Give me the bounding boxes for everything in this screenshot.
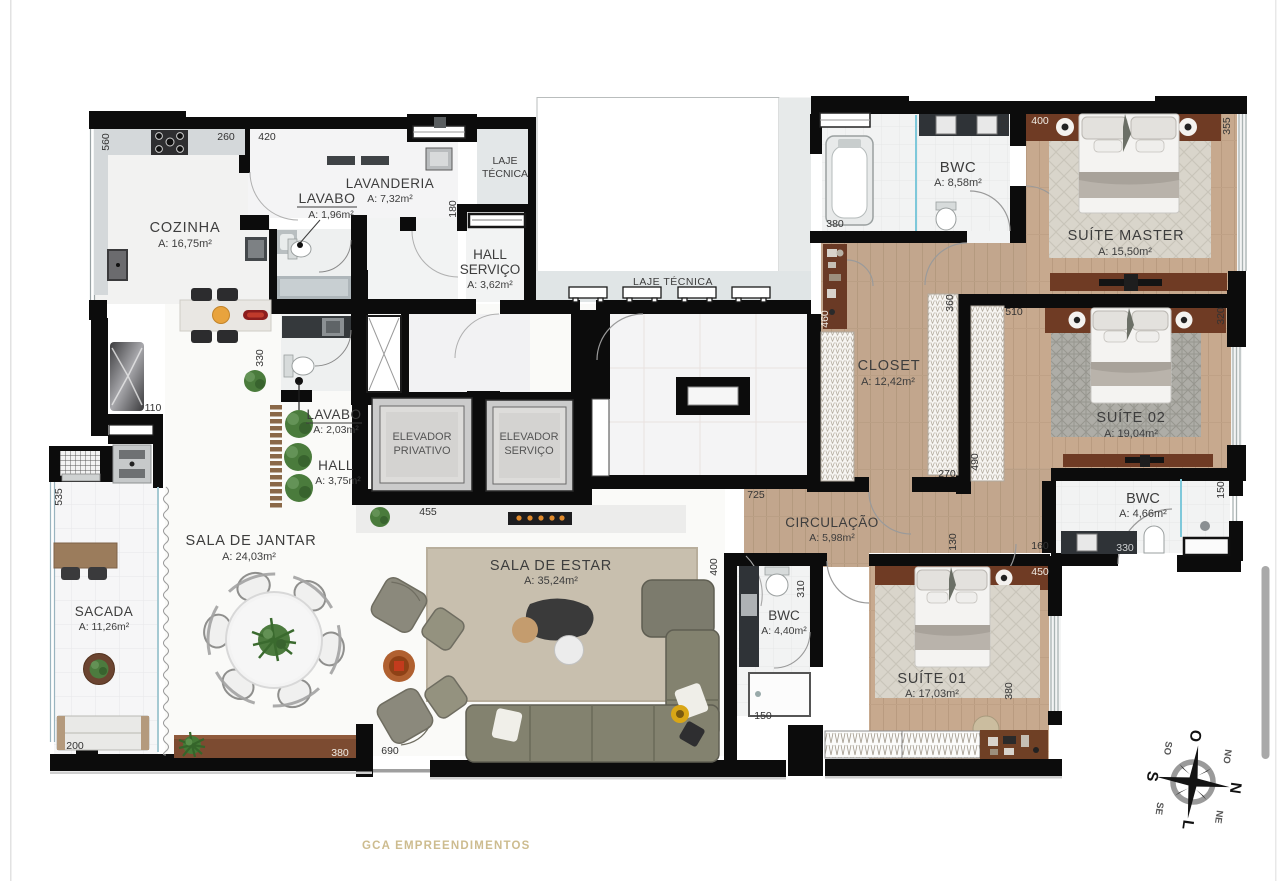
- svg-text:CLOSET: CLOSET: [858, 358, 921, 374]
- svg-text:BWC: BWC: [768, 608, 800, 623]
- svg-text:NO: NO: [1220, 749, 1233, 765]
- svg-text:HALL: HALL: [473, 247, 507, 262]
- svg-text:320: 320: [1215, 307, 1227, 325]
- svg-text:O: O: [1186, 729, 1205, 743]
- svg-text:A: 17,03m²: A: 17,03m²: [905, 688, 959, 700]
- svg-text:TÉCNICA: TÉCNICA: [482, 167, 528, 180]
- svg-text:360: 360: [944, 294, 956, 312]
- svg-text:235: 235: [999, 116, 1011, 134]
- svg-text:330: 330: [254, 349, 266, 367]
- svg-text:150: 150: [1215, 481, 1227, 499]
- svg-text:A: 12,42m²: A: 12,42m²: [861, 376, 915, 388]
- svg-text:LAVANDERIA: LAVANDERIA: [346, 176, 435, 191]
- svg-text:535: 535: [53, 488, 65, 506]
- svg-text:A: 11,26m²: A: 11,26m²: [79, 621, 130, 633]
- svg-text:560: 560: [100, 133, 112, 151]
- svg-text:SUÍTE MASTER: SUÍTE MASTER: [1068, 227, 1185, 244]
- svg-text:A: 15,50m²: A: 15,50m²: [1098, 246, 1152, 258]
- svg-text:A: 3,62m²: A: 3,62m²: [467, 279, 513, 291]
- svg-text:725: 725: [747, 489, 765, 501]
- svg-text:460: 460: [819, 310, 831, 328]
- svg-text:NE: NE: [1212, 810, 1225, 825]
- svg-text:510: 510: [1005, 306, 1023, 318]
- svg-text:200: 200: [66, 740, 84, 752]
- svg-text:A: 4,40m²: A: 4,40m²: [761, 625, 807, 637]
- svg-text:ELEVADOR: ELEVADOR: [499, 431, 558, 443]
- svg-text:400: 400: [1031, 115, 1049, 127]
- svg-text:A: 16,75m²: A: 16,75m²: [158, 238, 212, 250]
- svg-text:380: 380: [826, 218, 844, 230]
- svg-text:SACADA: SACADA: [75, 604, 134, 619]
- svg-text:110: 110: [145, 402, 162, 414]
- svg-text:N: N: [1226, 781, 1244, 794]
- svg-text:310: 310: [795, 580, 807, 598]
- svg-text:SERVIÇO: SERVIÇO: [504, 445, 554, 457]
- svg-text:490: 490: [969, 453, 981, 471]
- svg-text:A: 19,04m²: A: 19,04m²: [1104, 428, 1158, 440]
- svg-text:LAJE TÉCNICA: LAJE TÉCNICA: [633, 275, 713, 288]
- svg-text:A: 2,03m²: A: 2,03m²: [313, 424, 359, 436]
- svg-text:HALL: HALL: [318, 458, 354, 473]
- svg-text:ELEVADOR: ELEVADOR: [392, 431, 451, 443]
- svg-text:GCA EMPREENDIMENTOS: GCA EMPREENDIMENTOS: [362, 840, 530, 852]
- svg-text:LAJE: LAJE: [492, 155, 517, 167]
- svg-text:CIRCULAÇÃO: CIRCULAÇÃO: [785, 515, 879, 530]
- svg-text:SALA DE ESTAR: SALA DE ESTAR: [490, 558, 612, 574]
- svg-text:BWC: BWC: [940, 159, 977, 176]
- svg-text:455: 455: [419, 506, 437, 518]
- svg-text:A: 3,75m²: A: 3,75m²: [315, 475, 361, 487]
- svg-text:130: 130: [947, 533, 959, 551]
- svg-text:150: 150: [754, 710, 772, 722]
- svg-text:COZINHA: COZINHA: [150, 220, 221, 236]
- svg-text:SUÍTE 01: SUÍTE 01: [897, 670, 966, 687]
- svg-text:180: 180: [447, 200, 459, 218]
- svg-text:450: 450: [1031, 566, 1049, 578]
- svg-text:A: 35,24m²: A: 35,24m²: [524, 575, 578, 587]
- svg-text:A: 1,96m²: A: 1,96m²: [308, 209, 354, 221]
- svg-text:A: 7,32m²: A: 7,32m²: [367, 193, 413, 205]
- svg-text:380: 380: [1003, 682, 1015, 700]
- svg-text:270: 270: [938, 468, 956, 480]
- svg-text:LAVABO: LAVABO: [299, 190, 356, 206]
- svg-text:A: 24,03m²: A: 24,03m²: [222, 551, 276, 563]
- svg-text:A: 4,66m²: A: 4,66m²: [1119, 508, 1167, 520]
- svg-text:380: 380: [331, 747, 349, 759]
- svg-text:SE: SE: [1153, 801, 1166, 815]
- svg-text:420: 420: [258, 131, 276, 143]
- svg-text:A: 5,98m²: A: 5,98m²: [809, 532, 855, 544]
- svg-text:SALA DE JANTAR: SALA DE JANTAR: [186, 533, 317, 549]
- svg-text:SO: SO: [1161, 741, 1174, 756]
- svg-text:SERVIÇO: SERVIÇO: [460, 262, 521, 277]
- svg-text:PRIVATIVO: PRIVATIVO: [393, 445, 450, 457]
- svg-text:355: 355: [1221, 117, 1233, 135]
- svg-text:160: 160: [1031, 540, 1049, 552]
- svg-text:690: 690: [381, 745, 399, 757]
- svg-text:A: 8,58m²: A: 8,58m²: [934, 177, 982, 189]
- svg-text:260: 260: [217, 131, 235, 143]
- svg-text:BWC: BWC: [1126, 491, 1160, 507]
- svg-text:330: 330: [1116, 542, 1134, 554]
- svg-text:LAVABO: LAVABO: [306, 407, 361, 422]
- svg-text:400: 400: [708, 558, 720, 576]
- svg-text:SUÍTE 02: SUÍTE 02: [1096, 409, 1165, 426]
